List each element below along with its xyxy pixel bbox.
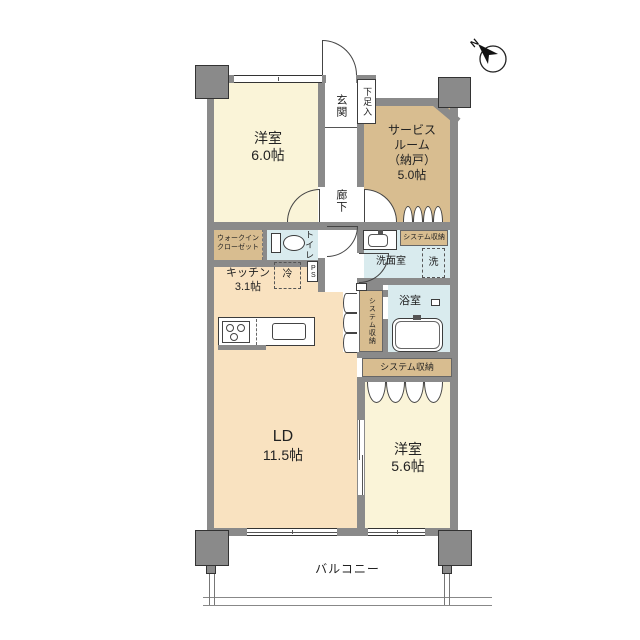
pipe-space-box: PS: [307, 261, 318, 282]
washer-label: 洗: [429, 257, 439, 270]
bedroom1-name: 洋室: [254, 130, 282, 148]
window-ld-balcony: [247, 528, 337, 536]
bathroom-text: 浴室: [399, 295, 421, 309]
shoe-cabinet-label: 下足入: [359, 82, 374, 122]
washroom-label: 洗面室: [368, 254, 414, 270]
living-dining-label: LD 11.5帖: [245, 424, 321, 468]
bedroom2-name: 洋室: [394, 441, 422, 459]
bath-door-gap: [383, 297, 388, 319]
service-room-size: 5.0帖: [398, 168, 427, 183]
storage-bathside-box: システム収納: [359, 290, 383, 352]
storage-bedroom2-label: システム収納: [380, 362, 434, 373]
pillar-bottom-left: [195, 530, 229, 566]
ld-accordion-door: [343, 333, 357, 353]
railing-post-right: [444, 574, 445, 605]
walk-in-closet-label: ウォークイン クローゼット: [214, 231, 262, 257]
compass-icon: N: [468, 34, 514, 80]
window-tick: [397, 530, 398, 534]
bathroom-label: 浴室: [392, 294, 428, 310]
ld-name: LD: [273, 427, 293, 447]
kitchen-counter: [218, 317, 315, 346]
sliding-door-leaf1: [359, 420, 360, 460]
service-room-label: サービス ルーム （納戸） 5.0帖: [372, 118, 452, 188]
basin-tap-icon: [378, 230, 383, 234]
stove: [222, 321, 250, 343]
kitchen-name: キッチン: [226, 267, 270, 281]
pillar-top-right: [438, 77, 471, 108]
railing-post-right2: [449, 574, 450, 605]
sliding-door-leaf2: [362, 455, 363, 495]
washroom-text: 洗面室: [376, 256, 406, 269]
railing-post-left: [209, 574, 210, 605]
wic-line1: ウォークイン: [217, 235, 259, 244]
corridor-text: 廊下: [333, 189, 347, 213]
basin-bowl: [368, 234, 388, 247]
storage-washroom-box: システム収納: [400, 230, 448, 246]
utility-box: [356, 283, 367, 291]
railing-bottom-line: [203, 605, 492, 606]
toilet-text: トイレ: [303, 230, 314, 260]
entrance-text: 玄関: [333, 94, 347, 118]
entrance-door-arc: [322, 40, 357, 75]
pillar-foot-left: [206, 565, 216, 574]
refrigerator-label: 冷: [283, 269, 293, 282]
pillar-top-left: [195, 65, 229, 99]
service-room-name1: サービス: [388, 123, 436, 138]
wall-corridor-left-upper: [318, 83, 325, 187]
ld-accordion-door: [343, 313, 357, 333]
pillar-foot-right: [442, 565, 452, 574]
pipe-space-label: PS: [308, 265, 317, 279]
service-room-name2: ルーム: [394, 138, 430, 153]
ld-floor-east: [343, 352, 357, 528]
bedroom1-size: 6.0帖: [251, 147, 284, 165]
window-tick: [278, 77, 279, 81]
pillar-bottom-right: [438, 530, 472, 566]
railing-post-left2: [214, 574, 215, 605]
toilet-label: トイレ: [302, 230, 315, 260]
kitchen-size: 3.1帖: [235, 281, 261, 295]
storage-bathside-label: システム収納: [367, 297, 376, 345]
entrance-label: 玄関: [332, 88, 348, 124]
stove-burner: [226, 324, 234, 332]
corridor-label: 廊下: [332, 185, 348, 217]
shoe-cabinet-text: 下足入: [361, 87, 372, 117]
kitchen-ld-floor: [214, 267, 325, 528]
wic-line2: クローゼット: [217, 244, 259, 253]
floor-plan: 冷 PS システム収納 洗 システム収納 システム収納 洋室: [0, 0, 640, 640]
window-tick: [292, 530, 293, 534]
storage-bedroom2-box: システム収納: [362, 358, 452, 377]
stove-burner: [237, 324, 245, 332]
toilet-tank: [271, 233, 281, 253]
kitchen-sink: [272, 323, 306, 340]
compass-n-label: N: [469, 37, 482, 50]
window-bedroom1-top: [234, 75, 322, 83]
ld-accordion-door: [343, 293, 357, 313]
bathtub: [392, 318, 443, 352]
bedroom2-label: 洋室 5.6帖: [368, 438, 448, 478]
window-bedroom2-balcony: [368, 528, 425, 536]
wall-left: [207, 83, 214, 535]
storage-washroom-label: システム収納: [403, 234, 445, 243]
bedroom2-size: 5.6帖: [391, 458, 424, 476]
balcony-text: バルコニー: [315, 562, 380, 577]
washer-box: 洗: [422, 248, 445, 278]
ld-size: 11.5帖: [263, 447, 303, 465]
sliding-door-ld-bedroom2: [358, 420, 364, 495]
balcony-label: バルコニー: [300, 561, 395, 577]
wash-basin: [363, 230, 397, 250]
stove-burner: [230, 333, 238, 341]
bathtub-tap-icon: [413, 315, 421, 320]
kitchen-label: キッチン 3.1帖: [216, 266, 280, 296]
service-room-name3: （納戸）: [388, 153, 436, 168]
bathtub-inner: [395, 321, 440, 349]
kitchen-half-wall: [218, 345, 266, 350]
wall-wic-toilet: [263, 229, 267, 260]
shower-icon: [431, 299, 440, 306]
counter-divider: [256, 319, 257, 345]
bedroom1-label: 洋室 6.0帖: [228, 128, 308, 166]
ld-floor-mid: [325, 292, 343, 528]
entrance-step-line: [325, 127, 357, 128]
